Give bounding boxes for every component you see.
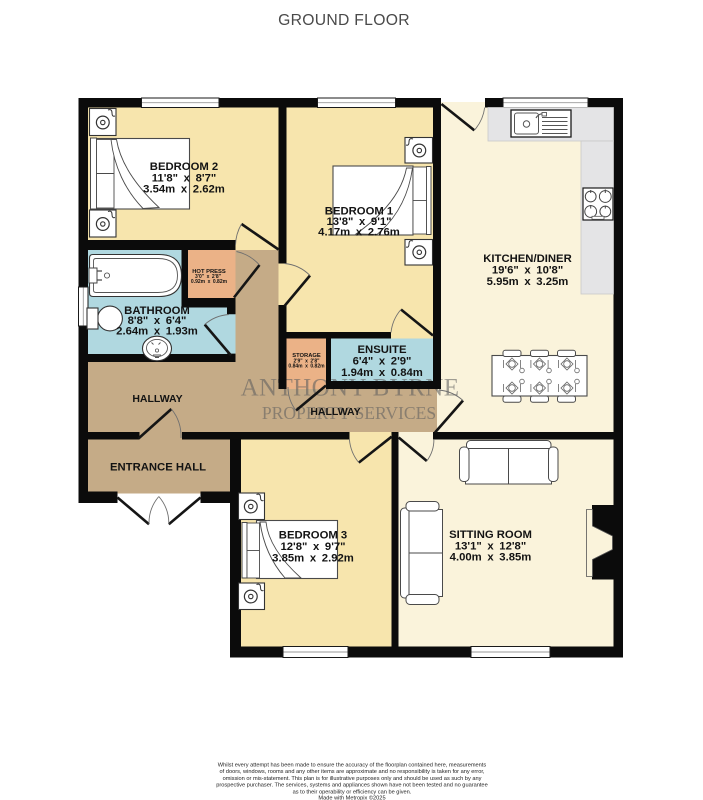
svg-text:of doors, windows, rooms and a: of doors, windows, rooms and any other i… <box>220 769 485 775</box>
svg-text:BEDROOM 2: BEDROOM 2 <box>150 161 218 173</box>
svg-text:Whilst every attempt has been: Whilst every attempt has been made to en… <box>218 763 487 769</box>
svg-text:Made with Metropix ©2025: Made with Metropix ©2025 <box>318 794 385 800</box>
svg-text:GROUND FLOOR: GROUND FLOOR <box>278 12 410 29</box>
svg-text:4.00m x 3.85m: 4.00m x 3.85m <box>450 552 532 564</box>
svg-text:HALLWAY: HALLWAY <box>132 393 182 405</box>
svg-text:5.95m x 3.25m: 5.95m x 3.25m <box>487 276 569 288</box>
svg-text:BEDROOM 3: BEDROOM 3 <box>279 529 347 541</box>
svg-text:KITCHEN/DINER: KITCHEN/DINER <box>483 253 572 265</box>
svg-text:3.85m x 2.92m: 3.85m x 2.92m <box>272 553 354 565</box>
svg-text:1.94m x 0.84m: 1.94m x 0.84m <box>341 367 423 379</box>
svg-text:0.84m x 0.82m: 0.84m x 0.82m <box>288 363 325 369</box>
svg-text:6'4" x 2'9": 6'4" x 2'9" <box>353 356 412 368</box>
svg-text:3.54m x 2.62m: 3.54m x 2.62m <box>143 184 225 196</box>
svg-text:SITTING ROOM: SITTING ROOM <box>449 529 532 541</box>
svg-text:prospective purchaser. The ser: prospective purchaser. The services, sys… <box>216 783 487 789</box>
svg-text:omission or mis-statement. Thi: omission or mis-statement. This plan is … <box>223 776 482 782</box>
svg-text:4.17m x 2.76m: 4.17m x 2.76m <box>318 226 400 238</box>
svg-text:ENTRANCE HALL: ENTRANCE HALL <box>110 462 206 474</box>
svg-text:HALLWAY: HALLWAY <box>310 406 360 418</box>
svg-text:2.64m x 1.93m: 2.64m x 1.93m <box>116 326 198 338</box>
svg-text:0.92m x 0.82m: 0.92m x 0.82m <box>191 279 228 285</box>
svg-text:ENSUITE: ENSUITE <box>358 344 407 356</box>
svg-text:11'8" x 8'7": 11'8" x 8'7" <box>152 172 216 184</box>
svg-text:12'8" x 9'7": 12'8" x 9'7" <box>280 541 345 553</box>
svg-text:19'6" x 10'8": 19'6" x 10'8" <box>492 265 563 277</box>
